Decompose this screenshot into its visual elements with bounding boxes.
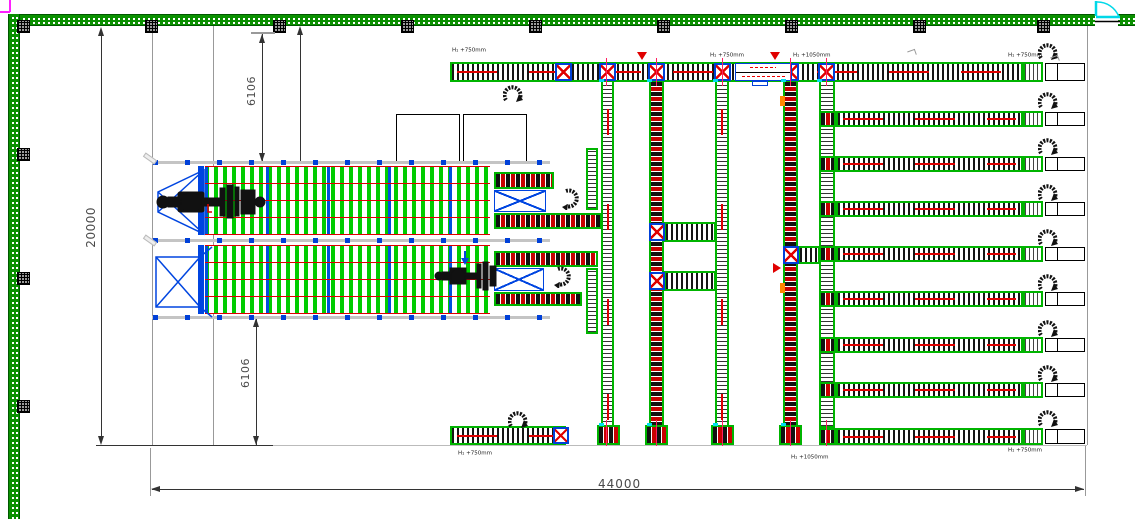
column: [657, 20, 670, 33]
column: [785, 20, 798, 33]
wrapping-machine-1: [156, 180, 268, 224]
orange-sensor-mark: [780, 96, 785, 106]
conveyor-end-station: [1023, 201, 1043, 217]
tiny-note-mark: [907, 49, 917, 57]
spine-conveyor-2: [649, 80, 664, 428]
cross-conveyor: [798, 246, 820, 264]
storage-lane-conveyor: [836, 201, 1023, 217]
conveyor-end-station: [1023, 428, 1043, 445]
column: [145, 20, 158, 33]
height-label: H₁ +750mm: [1008, 52, 1042, 58]
rotation-arrow-icon: [1038, 409, 1060, 429]
spine-conveyor-1: [601, 80, 614, 428]
height-label: H₁ +750mm: [1008, 447, 1042, 453]
spine-bottom-block: [597, 425, 620, 445]
guide-line-right-boundary: [1087, 22, 1088, 445]
orange-sensor-mark: [780, 283, 785, 293]
rack-outfeed-conveyor: [494, 292, 582, 306]
height-label: H₁ +1050mm: [791, 454, 829, 460]
spine-conveyor-3: [715, 80, 729, 428]
row-junction: [819, 246, 836, 262]
red-axis-tick: [722, 58, 723, 86]
dim-44000-text: 44000: [598, 477, 641, 491]
cyan-tick: [713, 423, 718, 426]
rotation-arrow-icon: [1038, 319, 1060, 339]
rotation-arrow-icon: [1038, 364, 1060, 384]
rack-rail-top-nodes: [153, 160, 545, 165]
conveyor-end-station: [1023, 156, 1043, 172]
column: [17, 272, 30, 285]
cad-drawing-canvas: 20000 6106 6106 44000: [0, 0, 1135, 519]
cross-conveyor: [664, 222, 716, 242]
cyan-tick: [713, 79, 718, 82]
conveyor-end-station: [1023, 291, 1043, 307]
flow-arrow-blue-icon: [458, 250, 472, 266]
spur-conveyor-vertical: [586, 148, 598, 210]
dim-44000-ext-right: [1085, 446, 1086, 496]
cyan-tick: [599, 79, 604, 82]
cross-conveyor: [664, 271, 716, 291]
rotation-arrow-icon: [1038, 137, 1060, 157]
red-axis-tick: [656, 420, 657, 446]
small-red-annotation: [750, 67, 776, 68]
height-label: H₁ +1050mm: [793, 52, 831, 58]
column: [17, 400, 30, 413]
column: [17, 20, 30, 33]
pickup-table: [1045, 202, 1085, 216]
spur-conveyor-vertical: [586, 268, 598, 334]
level-marker-icon: [637, 52, 647, 60]
equipment-box-1: [396, 114, 460, 163]
rotation-arrow-icon: [1038, 273, 1060, 293]
cyan-tick: [599, 423, 604, 426]
rotation-arrow-icon: [1038, 91, 1060, 111]
column: [529, 20, 542, 33]
storage-lane-conveyor: [836, 291, 1023, 307]
column: [913, 20, 926, 33]
dim-6106-bottom-line: [256, 318, 257, 445]
transfer-xframe: [494, 268, 544, 291]
rotation-arrow-icon: [554, 266, 574, 288]
conveyor-end-station: [1023, 246, 1043, 262]
guide-line-vertical-2: [213, 26, 214, 445]
equipment-box-2: [463, 114, 527, 163]
column: [401, 20, 414, 33]
pickup-table: [1045, 247, 1085, 261]
rack-outfeed-conveyor: [494, 251, 598, 267]
red-axis-tick: [606, 420, 607, 446]
transfer-junction: [649, 272, 665, 290]
height-label: H₁ +750mm: [710, 52, 744, 58]
storage-lane-conveyor: [836, 246, 1023, 262]
transfer-junction: [555, 63, 572, 81]
rotation-arrow-icon: [1038, 228, 1060, 248]
rotation-arrow-icon: [503, 84, 525, 104]
dim-6106-top-line: [262, 34, 263, 162]
rail-hook-icon: [143, 152, 157, 164]
height-label: H₁ +750mm: [452, 47, 486, 53]
pickup-table: [1045, 292, 1085, 306]
dim-20000-text: 20000: [84, 207, 98, 248]
flow-marker-icon: [773, 263, 781, 273]
column: [1037, 20, 1050, 33]
left-wall: [8, 14, 20, 519]
row-junction: [819, 337, 836, 353]
row-junction: [819, 382, 836, 398]
red-axis-tick: [790, 58, 791, 86]
viewport-edge-horizontal: [0, 11, 10, 13]
conveyor-end-station: [1023, 111, 1043, 127]
storage-lane-conveyor: [836, 428, 1023, 445]
column: [17, 148, 30, 161]
leader-arrow-up-icon: [297, 26, 303, 35]
dim-arrow-icon: [98, 436, 104, 445]
cyan-tick: [817, 79, 822, 82]
pickup-table: [1045, 63, 1085, 81]
red-axis-tick: [722, 420, 723, 446]
top-wall-left-segment: [8, 14, 1095, 26]
conveyor-end-station: [1023, 337, 1043, 353]
pickup-table: [1045, 383, 1085, 397]
pickup-table: [1045, 429, 1085, 444]
red-axis-tick: [656, 58, 657, 86]
rack-outfeed-conveyor: [494, 213, 602, 229]
red-axis-tick: [790, 420, 791, 446]
infeed-funnel-frame-lower: [150, 243, 214, 321]
dim-20000-line: [101, 30, 102, 441]
red-axis-tick: [606, 58, 607, 86]
row-junction: [819, 428, 836, 445]
rotation-arrow-icon: [508, 410, 530, 430]
dim-arrow-icon: [1075, 486, 1084, 492]
cyan-tick: [647, 423, 652, 426]
conveyor-end-station: [1023, 62, 1043, 82]
dim-arrow-icon: [259, 34, 265, 43]
red-axis-tick: [826, 58, 827, 86]
rotation-arrow-icon: [1038, 183, 1060, 203]
cyan-tick: [781, 423, 786, 426]
pickup-table: [1045, 338, 1085, 352]
row-junction: [819, 291, 836, 307]
height-label: H₁ +750mm: [458, 450, 492, 456]
storage-lane-conveyor: [836, 337, 1023, 353]
leader-line: [300, 30, 301, 162]
storage-lane-conveyor: [836, 156, 1023, 172]
rotation-arrow-icon: [562, 188, 582, 210]
door-swing-icon: [1088, 0, 1128, 26]
dim-6106-top-text: 6106: [245, 76, 258, 106]
small-red-annotation: [742, 76, 786, 77]
dim-6106-bottom-text: 6106: [239, 358, 252, 388]
pickup-table: [1045, 112, 1085, 126]
annotation-tab: [752, 81, 768, 86]
dim-arrow-icon: [151, 486, 160, 492]
transfer-junction: [649, 223, 665, 241]
floor-boundary-line: [96, 445, 1087, 446]
storage-lane-conveyor: [836, 382, 1023, 398]
pickup-table: [1045, 157, 1085, 171]
transfer-junction: [783, 246, 799, 264]
row-junction: [819, 111, 836, 127]
storage-lane-conveyor: [836, 111, 1023, 127]
transfer-xframe: [494, 190, 546, 212]
cyan-tick: [781, 79, 786, 82]
dim-arrow-icon: [253, 436, 259, 445]
row-junction: [819, 201, 836, 217]
red-axis-tick: [826, 420, 827, 446]
dim-arrow-icon: [98, 27, 104, 36]
transfer-junction: [553, 427, 569, 444]
row-junction: [819, 156, 836, 172]
rack-outfeed-conveyor: [494, 172, 554, 189]
level-marker-icon: [770, 52, 780, 60]
cyan-tick: [647, 79, 652, 82]
conveyor-end-station: [1023, 382, 1043, 398]
